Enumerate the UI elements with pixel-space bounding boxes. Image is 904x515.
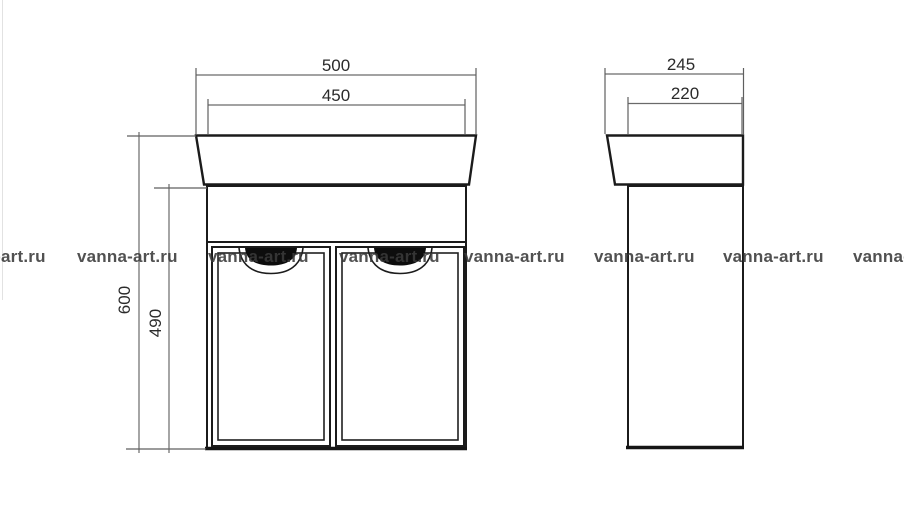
sink-front-outline: [196, 136, 476, 185]
watermark-text: vanna-art.ru: [464, 247, 565, 267]
door-left-outline: [212, 247, 330, 446]
watermark-text: vanna-art.ru: [723, 247, 824, 267]
dim-label-500: 500: [322, 56, 350, 75]
watermark-text: vanna-art.ru: [0, 247, 46, 267]
door-right-inner-panel: [342, 253, 458, 440]
side-dimensions: 245 220: [605, 55, 744, 134]
watermark-text: vanna-art.ru: [77, 247, 178, 267]
watermark-text: vanna-art.ru: [339, 247, 440, 267]
side-view: [607, 136, 744, 449]
watermark-text: vanna-art.ru: [594, 247, 695, 267]
dim-label-220: 220: [671, 84, 699, 103]
front-view: [196, 136, 476, 450]
door-right-outline: [336, 247, 464, 446]
technical-drawing-canvas: 500 450 600 490: [0, 0, 904, 515]
sink-side-outline: [607, 136, 743, 185]
dim-label-490: 490: [146, 309, 165, 337]
dim-label-245: 245: [667, 55, 695, 74]
door-left-inner-panel: [218, 253, 324, 440]
watermark-text: vanna-art.ru: [853, 247, 904, 267]
cabinet-side-outline: [628, 186, 743, 448]
dim-label-450: 450: [322, 86, 350, 105]
dim-label-600: 600: [115, 286, 134, 314]
watermark-text: vanna-art.ru: [208, 247, 309, 267]
